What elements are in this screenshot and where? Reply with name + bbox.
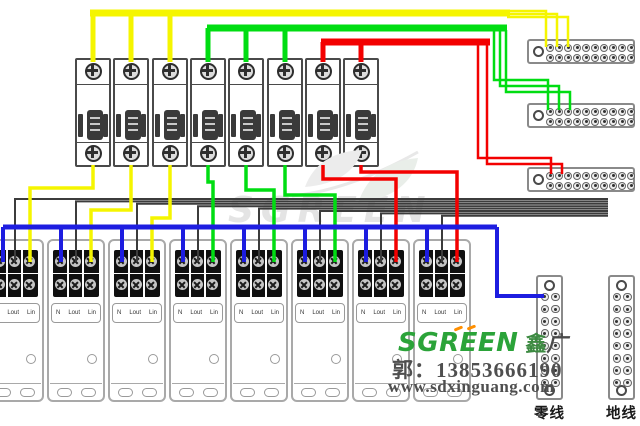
terminal-screw-x-icon (362, 258, 369, 265)
terminal-separator (236, 273, 282, 274)
terminal-dot (615, 344, 618, 347)
toggle-ridge (128, 129, 138, 131)
energy-meter-6: NLoutLin (291, 239, 349, 402)
meter-terminal (253, 279, 264, 290)
screw-cross-icon (240, 69, 251, 72)
terminal-dot (612, 110, 615, 113)
terminal-dot (585, 56, 588, 59)
meter-terminal (9, 279, 20, 290)
terminal-dot (612, 174, 615, 177)
terminal-dot (576, 56, 579, 59)
meter-terminal (55, 256, 66, 267)
breaker-clip (295, 114, 300, 137)
terminal-dot (621, 56, 624, 59)
meter-terminal-label: N (117, 310, 121, 316)
block-terminal (555, 182, 563, 190)
terminal-dot (594, 184, 597, 187)
terminal-screw-x-icon (209, 281, 216, 288)
mount-hole (544, 385, 555, 396)
breaker-clip (78, 114, 83, 137)
terminal-screw-x-icon (377, 281, 384, 288)
meter-terminal (207, 256, 218, 267)
terminal-dot (543, 320, 546, 323)
strip-label: 地线 (600, 402, 640, 423)
meter-label: NLoutLin (51, 303, 101, 323)
screw-cross-icon (164, 69, 175, 72)
terminal-screw-x-icon (148, 258, 155, 265)
meter-terminal (436, 279, 447, 290)
block-terminal (555, 54, 563, 62)
meter-slot (362, 388, 377, 397)
block-terminal (573, 108, 581, 116)
terminal-separator (114, 273, 160, 274)
terminal-screw-x-icon (255, 258, 262, 265)
logo-accent-icon (454, 325, 464, 332)
breaker-clip (231, 114, 236, 137)
red-wire (487, 44, 562, 174)
breaker-divider (230, 84, 262, 85)
screw-cross-icon (283, 65, 286, 76)
breaker-toggle (87, 110, 103, 140)
meter-seal (331, 354, 341, 364)
circuit-breaker-6 (267, 58, 303, 167)
terminal-dot (585, 184, 588, 187)
meter-slot (240, 388, 255, 397)
green-wire (208, 165, 213, 262)
green-wire (500, 30, 559, 110)
block-terminal (609, 118, 617, 126)
energy-meter-1: NLoutLin (0, 239, 44, 402)
meter-seal (453, 354, 463, 364)
breaker-clip (256, 114, 261, 137)
terminal-screw-x-icon (316, 258, 323, 265)
block-terminal (564, 54, 572, 62)
meter-divider (416, 383, 468, 384)
meter-terminal-label: Lout (251, 310, 263, 316)
screw-cross-icon (321, 147, 324, 158)
block-terminal (627, 108, 635, 116)
terminal-separator (265, 250, 267, 297)
screw-cross-icon (240, 151, 251, 154)
block-terminal (609, 172, 617, 180)
meter-seal (270, 354, 280, 364)
toggle-ridge (320, 117, 330, 119)
contact-phone: 郭：13853666190 (392, 354, 563, 384)
terminal-dot (612, 46, 615, 49)
terminal-dot (558, 174, 561, 177)
terminal-screw-x-icon (453, 258, 460, 265)
terminal-dot (543, 295, 546, 298)
strip-terminal (551, 317, 560, 326)
screw-cross-icon (317, 69, 328, 72)
meter-terminal (24, 256, 35, 267)
terminal-dot (621, 46, 624, 49)
yellow-wire (91, 165, 131, 262)
terminal-screw-x-icon (255, 258, 262, 265)
terminal-dot (603, 120, 606, 123)
terminal-dot (594, 120, 597, 123)
screw-cross-icon (87, 69, 98, 72)
screw-terminal (315, 145, 332, 162)
toggle-ridge (128, 123, 138, 125)
meter-terminal (116, 256, 127, 267)
terminal-screw-x-icon (133, 258, 140, 265)
terminal-screw-x-icon (209, 258, 216, 265)
terminal-screw-x-icon (179, 258, 186, 265)
block-terminal (618, 54, 626, 62)
meter-terminal (329, 279, 340, 290)
meter-terminal (177, 256, 188, 267)
terminal-dot (615, 320, 618, 323)
terminal-screw-x-icon (11, 281, 18, 288)
terminal-screw-x-icon (87, 258, 94, 265)
meter-terminal (360, 256, 371, 267)
meter-terminal-block (175, 250, 221, 297)
screw-terminal (238, 63, 255, 80)
screw-cross-icon (279, 69, 290, 72)
screw-cross-icon (279, 151, 290, 154)
meter-terminal-label: Lout (373, 310, 385, 316)
meter-terminal (70, 256, 81, 267)
terminal-dot (558, 56, 561, 59)
terminal-screw-x-icon (331, 281, 338, 288)
yellow-wire (30, 165, 93, 262)
terminal-dot (594, 56, 597, 59)
meter-terminal (0, 279, 5, 290)
terminal-screw-x-icon (179, 258, 186, 265)
breaker-clip (193, 114, 198, 137)
breaker-clip (308, 114, 313, 137)
terminal-dot (585, 174, 588, 177)
terminal-separator (433, 250, 435, 297)
toggle-ridge (282, 129, 292, 131)
terminal-separator (372, 250, 374, 297)
block-terminal (591, 54, 599, 62)
breaker-toggle (355, 110, 371, 140)
meter-terminal-label: N (300, 310, 304, 316)
energy-meter-2: NLoutLin (47, 239, 105, 402)
strip-terminal (551, 293, 560, 302)
toggle-ridge (167, 129, 177, 131)
block-terminal (609, 44, 617, 52)
terminal-screw-x-icon (438, 258, 445, 265)
terminal-separator (297, 273, 343, 274)
meter-terminal (421, 256, 432, 267)
screw-cross-icon (91, 65, 94, 76)
meter-terminal (253, 256, 264, 267)
terminal-dot (594, 174, 597, 177)
block-terminal (609, 108, 617, 116)
breaker-divider (345, 84, 377, 85)
block-terminal (582, 108, 590, 116)
terminal-screw-x-icon (423, 281, 430, 288)
block-terminal (618, 108, 626, 116)
screw-cross-icon (317, 151, 328, 154)
terminal-dot (621, 120, 624, 123)
strip-terminal (551, 305, 560, 314)
terminal-screw-x-icon (209, 281, 216, 288)
strip-terminal (541, 305, 550, 314)
circuit-breaker-8 (343, 58, 379, 167)
meter-slot (325, 388, 340, 397)
toggle-ridge (282, 117, 292, 119)
meter-terminal (238, 279, 249, 290)
toggle-ridge (243, 117, 253, 119)
mount-hole (616, 280, 627, 291)
meter-divider (0, 383, 41, 384)
circuit-breaker-2 (113, 58, 149, 167)
strip-terminal (623, 329, 632, 338)
terminal-screw-x-icon (255, 281, 262, 288)
meter-terminal (131, 256, 142, 267)
terminal-dot (621, 174, 624, 177)
meter-terminal (238, 256, 249, 267)
breaker-clip (371, 114, 376, 137)
terminal-screw-x-icon (57, 258, 64, 265)
screw-terminal (85, 63, 102, 80)
breaker-clip (141, 114, 146, 137)
breaker-divider (345, 142, 377, 143)
block-terminal (573, 182, 581, 190)
screw-cross-icon (283, 147, 286, 158)
terminal-screw-x-icon (438, 281, 445, 288)
block-terminal (582, 44, 590, 52)
breaker-divider (192, 142, 224, 143)
screw-terminal (162, 63, 179, 80)
meter-terminal (192, 256, 203, 267)
green-wire (494, 30, 548, 110)
terminal-screw-x-icon (118, 258, 125, 265)
block-terminal (591, 172, 599, 180)
strip-terminal (541, 366, 550, 375)
meter-terminal-block (0, 250, 38, 297)
terminal-dot (615, 357, 618, 360)
meter-terminal (375, 256, 386, 267)
breaker-clip (116, 114, 121, 137)
terminal-dot (626, 308, 629, 311)
terminal-dot (558, 110, 561, 113)
meter-terminal (329, 256, 340, 267)
meter-terminal-label: Lin (149, 310, 157, 316)
meter-terminal (451, 279, 462, 290)
website-url: www.sdxinguang.com (388, 377, 555, 397)
strip-terminal (623, 342, 632, 351)
meter-terminal-label: Lout (129, 310, 141, 316)
terminal-dot (626, 295, 629, 298)
meter-terminal-label: Lout (434, 310, 446, 316)
terminal-dot (615, 381, 618, 384)
meter-divider (233, 383, 285, 384)
terminal-dot (626, 344, 629, 347)
terminal-dot (554, 344, 557, 347)
mount-hole (533, 110, 544, 121)
block-terminal (564, 108, 572, 116)
terminal-screw-x-icon (26, 258, 33, 265)
circuit-breaker-5 (228, 58, 264, 167)
toggle-ridge (90, 123, 100, 125)
meter-slot (386, 388, 401, 397)
terminal-screw-x-icon (301, 258, 308, 265)
block-terminal (600, 108, 608, 116)
terminal-screw-x-icon (377, 258, 384, 265)
block-terminal (564, 118, 572, 126)
meter-terminal (360, 279, 371, 290)
meter-terminal-label: Lin (88, 310, 96, 316)
terminal-screw-x-icon (0, 258, 3, 265)
terminal-dot (576, 184, 579, 187)
meter-terminal (85, 256, 96, 267)
mount-hole (544, 280, 555, 291)
meter-terminal (146, 256, 157, 267)
screw-terminal (238, 145, 255, 162)
block-terminal (627, 182, 635, 190)
terminal-dot (626, 332, 629, 335)
screw-terminal (277, 63, 294, 80)
screw-cross-icon (125, 69, 136, 72)
meter-label: NLoutLin (112, 303, 162, 323)
block-terminal (546, 182, 554, 190)
block-terminal (564, 44, 572, 52)
strip-terminal (551, 354, 560, 363)
terminal-screw-x-icon (133, 258, 140, 265)
ground-terminal-strip (608, 275, 635, 400)
terminal-separator (143, 250, 145, 297)
terminal-screw-x-icon (194, 258, 201, 265)
terminal-screw-x-icon (133, 281, 140, 288)
yellow-wire (507, 17, 568, 47)
toggle-ridge (90, 117, 100, 119)
breaker-divider (115, 142, 147, 143)
terminal-screw-x-icon (240, 258, 247, 265)
toggle-ridge (205, 123, 215, 125)
meter-terminal-label: Lin (210, 310, 218, 316)
terminal-dot (567, 184, 570, 187)
block-terminal (546, 172, 554, 180)
terminal-separator (67, 250, 69, 297)
meter-terminal-label: Lout (68, 310, 80, 316)
terminal-screw-x-icon (72, 281, 79, 288)
terminal-screw-x-icon (392, 281, 399, 288)
toggle-ridge (320, 129, 330, 131)
terminal-screw-x-icon (87, 281, 94, 288)
terminal-screw-x-icon (453, 281, 460, 288)
terminal-dot (549, 184, 552, 187)
terminal-screw-x-icon (316, 258, 323, 265)
terminal-dot (626, 381, 629, 384)
terminal-screw-x-icon (423, 258, 430, 265)
strip-terminal (613, 342, 622, 351)
meter-label: NLoutLin (295, 303, 345, 323)
strip-terminal (541, 342, 550, 351)
block-terminal (564, 182, 572, 190)
screw-cross-icon (244, 65, 247, 76)
terminal-screw-x-icon (240, 281, 247, 288)
terminal-screw-x-icon (209, 258, 216, 265)
terminal-dot (554, 295, 557, 298)
strip-terminal (541, 317, 550, 326)
strip-terminal (623, 305, 632, 314)
block-terminal (591, 182, 599, 190)
energy-meter-4: NLoutLin (169, 239, 227, 402)
terminal-dot (612, 120, 615, 123)
block-terminal (573, 172, 581, 180)
meter-label: NLoutLin (417, 303, 467, 323)
terminal-dot (630, 120, 633, 123)
terminal-screw-x-icon (316, 281, 323, 288)
terminal-dot (612, 56, 615, 59)
breaker-toggle (164, 110, 180, 140)
breaker-clip (270, 114, 275, 137)
block-terminal (600, 182, 608, 190)
terminal-screw-x-icon (118, 281, 125, 288)
wiring-diagram: SGREEN NLoutLinNLoutLinNLoutLinNLoutLinN… (0, 0, 640, 426)
terminal-dot (549, 120, 552, 123)
breaker-divider (154, 84, 186, 85)
toggle-ridge (243, 129, 253, 131)
terminal-screw-x-icon (301, 281, 308, 288)
meter-terminal (268, 279, 279, 290)
terminal-dot (603, 184, 606, 187)
yellow-wire (152, 165, 170, 262)
meter-divider (355, 383, 407, 384)
meter-slot (142, 388, 157, 397)
terminal-screw-x-icon (438, 281, 445, 288)
toggle-ridge (282, 123, 292, 125)
bus-terminal-block-2 (527, 103, 635, 128)
screw-terminal (277, 145, 294, 162)
circuit-breaker-7 (305, 58, 341, 167)
terminal-screw-x-icon (11, 258, 18, 265)
screw-cross-icon (168, 65, 171, 76)
logo-text: SGREEN (398, 328, 518, 358)
block-terminal (600, 54, 608, 62)
meter-divider (111, 383, 163, 384)
screw-cross-icon (244, 147, 247, 158)
terminal-separator (21, 250, 23, 297)
meter-terminal-block (358, 250, 404, 297)
breaker-divider (307, 84, 339, 85)
breaker-divider (307, 142, 339, 143)
meter-terminal-label: N (239, 310, 243, 316)
circuit-breaker-4 (190, 58, 226, 167)
terminal-screw-x-icon (240, 281, 247, 288)
block-terminal (582, 182, 590, 190)
breaker-clip (333, 114, 338, 137)
strip-terminal (613, 379, 622, 388)
block-terminal (555, 108, 563, 116)
terminal-dot (549, 46, 552, 49)
breaker-divider (77, 84, 109, 85)
meter-slot (203, 388, 218, 397)
screw-terminal (123, 63, 140, 80)
circuit-breaker-1 (75, 58, 111, 167)
terminal-screw-x-icon (11, 281, 18, 288)
meter-terminal (436, 256, 447, 267)
screw-cross-icon (91, 147, 94, 158)
meter-divider (50, 383, 102, 384)
screw-cross-icon (202, 69, 213, 72)
block-terminal (627, 44, 635, 52)
breaker-clip (218, 114, 223, 137)
block-terminal (555, 44, 563, 52)
black-wire (442, 216, 608, 262)
meter-label: NLoutLin (356, 303, 406, 323)
screw-cross-icon (87, 151, 98, 154)
terminal-dot (612, 184, 615, 187)
strip-terminal (623, 366, 632, 375)
terminal-dot (543, 381, 546, 384)
screw-terminal (353, 145, 370, 162)
